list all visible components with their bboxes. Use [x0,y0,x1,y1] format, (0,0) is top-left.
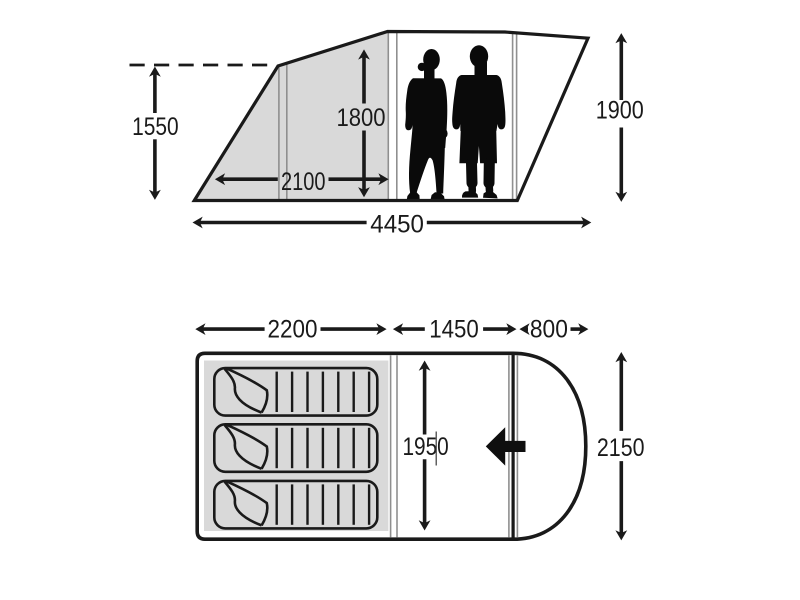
svg-text:1550: 1550 [132,114,179,141]
svg-text:1950: 1950 [402,434,448,461]
svg-text:4450: 4450 [370,211,424,238]
svg-text:2100: 2100 [281,169,326,196]
svg-text:1800: 1800 [336,105,385,132]
svg-text:800: 800 [530,317,568,344]
svg-text:1450: 1450 [429,317,479,344]
svg-text:2200: 2200 [268,317,318,344]
svg-text:2150: 2150 [597,435,645,462]
svg-text:1900: 1900 [596,98,644,125]
